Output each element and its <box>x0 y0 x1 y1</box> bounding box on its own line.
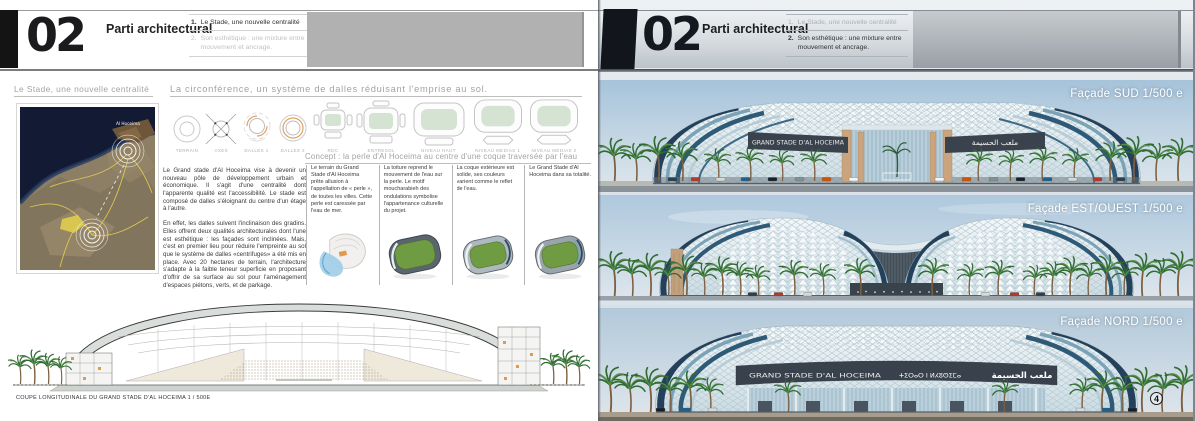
header-edge-block <box>600 9 637 69</box>
header-gray-box <box>307 12 584 67</box>
page-number: 4 <box>1150 392 1163 405</box>
diagram-dalles-1: DALLES 1 <box>239 97 275 153</box>
diagram-entresol: ENTRESOL <box>355 97 407 153</box>
chapter-item-1: 1. Le Stade, une nouvelle centralité <box>189 15 307 31</box>
diagram-dalles-2: DALLES 2 <box>275 97 311 153</box>
map-city-label: Al Hoceima <box>116 121 140 126</box>
item-number: 2. <box>191 34 197 52</box>
stadium-total-sketch <box>529 223 591 285</box>
concept-box-total: Le Grand Stade d'Al Hoceima dans sa tota… <box>524 165 591 285</box>
chapter-list: 1. Le Stade, une nouvelle centralité 2. … <box>786 14 908 57</box>
concept-box-pearl: Le terrain du Grand Stade d'Al Hoceima p… <box>306 165 373 285</box>
item-number: 1. <box>191 18 197 27</box>
section-title-stade: Le Stade, une nouvelle centralité <box>14 84 153 97</box>
body-text-column: Le Grand stade d'Al Hoceima vise à deven… <box>163 167 306 289</box>
paragraph-1: Le Grand stade d'Al Hoceima vise à deven… <box>163 167 306 213</box>
diagram-niveau-haut: NIVEAU HAUT <box>408 97 470 153</box>
site-map: Al Hoceima <box>16 103 159 274</box>
chapter-item-2: 2. Son esthétique : une mixture entre mo… <box>786 31 908 56</box>
chapter-list: 1. Le Stade, une nouvelle centralité 2. … <box>189 14 307 57</box>
banner-arabic-text: ملعب الحسيمة <box>992 371 1053 381</box>
header-edge-block <box>0 10 18 68</box>
section-title-circonference: La circonférence, un système de dalles r… <box>170 84 582 97</box>
banner-latin-text: GRAND STADE D'AL HOCEIMA <box>749 373 882 380</box>
chapter-item-1: 1. Le Stade, une nouvelle centralité <box>786 15 908 31</box>
slab-diagram-row: TERRAIN AXES DALLES 1 DALLES 2 RDC ENTRE… <box>170 97 582 153</box>
diagram-rdc: RDC <box>311 97 355 153</box>
chapter-item-2: 2. Son esthétique : une mixture entre mo… <box>189 31 307 56</box>
render-label-nord: Façade NORD 1/500 e <box>1060 316 1183 328</box>
concept-box-roof: La toiture reprend le mouvement de l'eau… <box>379 165 446 285</box>
shell-aerial-sketch <box>457 223 519 285</box>
header-top-rule <box>0 10 598 11</box>
diagram-niveau-medias-1: NIVEAU MEDIAS 1 <box>470 97 526 153</box>
pearl-sketch <box>311 223 373 285</box>
render-facade-nord: GRAND STADE D'AL HOCEIMA ⵜⵉⵔⴰⵔ ⵏ ⵍⵃⵓⵙⵉⵎⴰ… <box>598 308 1195 421</box>
header-bottom-rule <box>598 69 1193 72</box>
diagram-axes: AXES <box>204 97 238 153</box>
header-bottom-rule <box>0 69 598 71</box>
section-caption: COUPE LONGITUDINALE DU GRAND STADE D'AL … <box>16 395 211 401</box>
item-label: Son esthétique : une mixture entre mouve… <box>798 34 908 52</box>
panel-right: 02 Parti architectural 1. Le Stade, une … <box>598 0 1195 421</box>
concept-title: Concept : la perle d'Al Hoceima au centr… <box>305 152 591 164</box>
render-facade-est-ouest: Façade EST/OUEST 1/500 e <box>598 195 1195 305</box>
banner-latin-text: GRAND STADE D'AL HOCEIMA <box>752 140 845 147</box>
concept-box-shell: La coque extérieure est solide, ses coul… <box>452 165 519 285</box>
chapter-number: 02 <box>642 9 700 60</box>
satellite-map-drawing: Al Hoceima <box>20 107 155 270</box>
item-number: 2. <box>788 34 794 52</box>
item-label: Le Stade, une nouvelle centralité <box>201 18 300 27</box>
render-facade-sud: GRAND STADE D'AL HOCEIMA ملعب الحسيمة Fa… <box>598 80 1195 192</box>
diagram-terrain: TERRAIN <box>170 97 204 153</box>
render-label-est-ouest: Façade EST/OUEST 1/500 e <box>1028 203 1183 215</box>
item-label: Le Stade, une nouvelle centralité <box>798 18 897 27</box>
item-number: 1. <box>788 18 794 27</box>
banner-arabic-text: ملعب الحسيمة <box>972 138 1018 147</box>
chapter-number: 02 <box>26 10 84 61</box>
roof-aerial-sketch <box>384 223 446 285</box>
concept-boxes: Le terrain du Grand Stade d'Al Hoceima p… <box>306 165 591 285</box>
paragraph-2: En effet, les dalles suivent l'inclinais… <box>163 220 306 289</box>
panel-left: 02 Parti architectural 1. Le Stade, une … <box>0 0 598 421</box>
render-label-sud: Façade SUD 1/500 e <box>1070 88 1183 100</box>
banner-tifinagh-text: ⵜⵉⵔⴰⵔ ⵏ ⵍⵃⵓⵙⵉⵎⴰ <box>899 372 961 380</box>
header-gray-box <box>913 11 1181 68</box>
diagram-niveau-medias-2: NIVEAU MEDIAS 2 <box>526 97 582 153</box>
longitudinal-section-drawing <box>8 297 590 393</box>
item-label: Son esthétique : une mixture entre mouve… <box>201 34 307 52</box>
